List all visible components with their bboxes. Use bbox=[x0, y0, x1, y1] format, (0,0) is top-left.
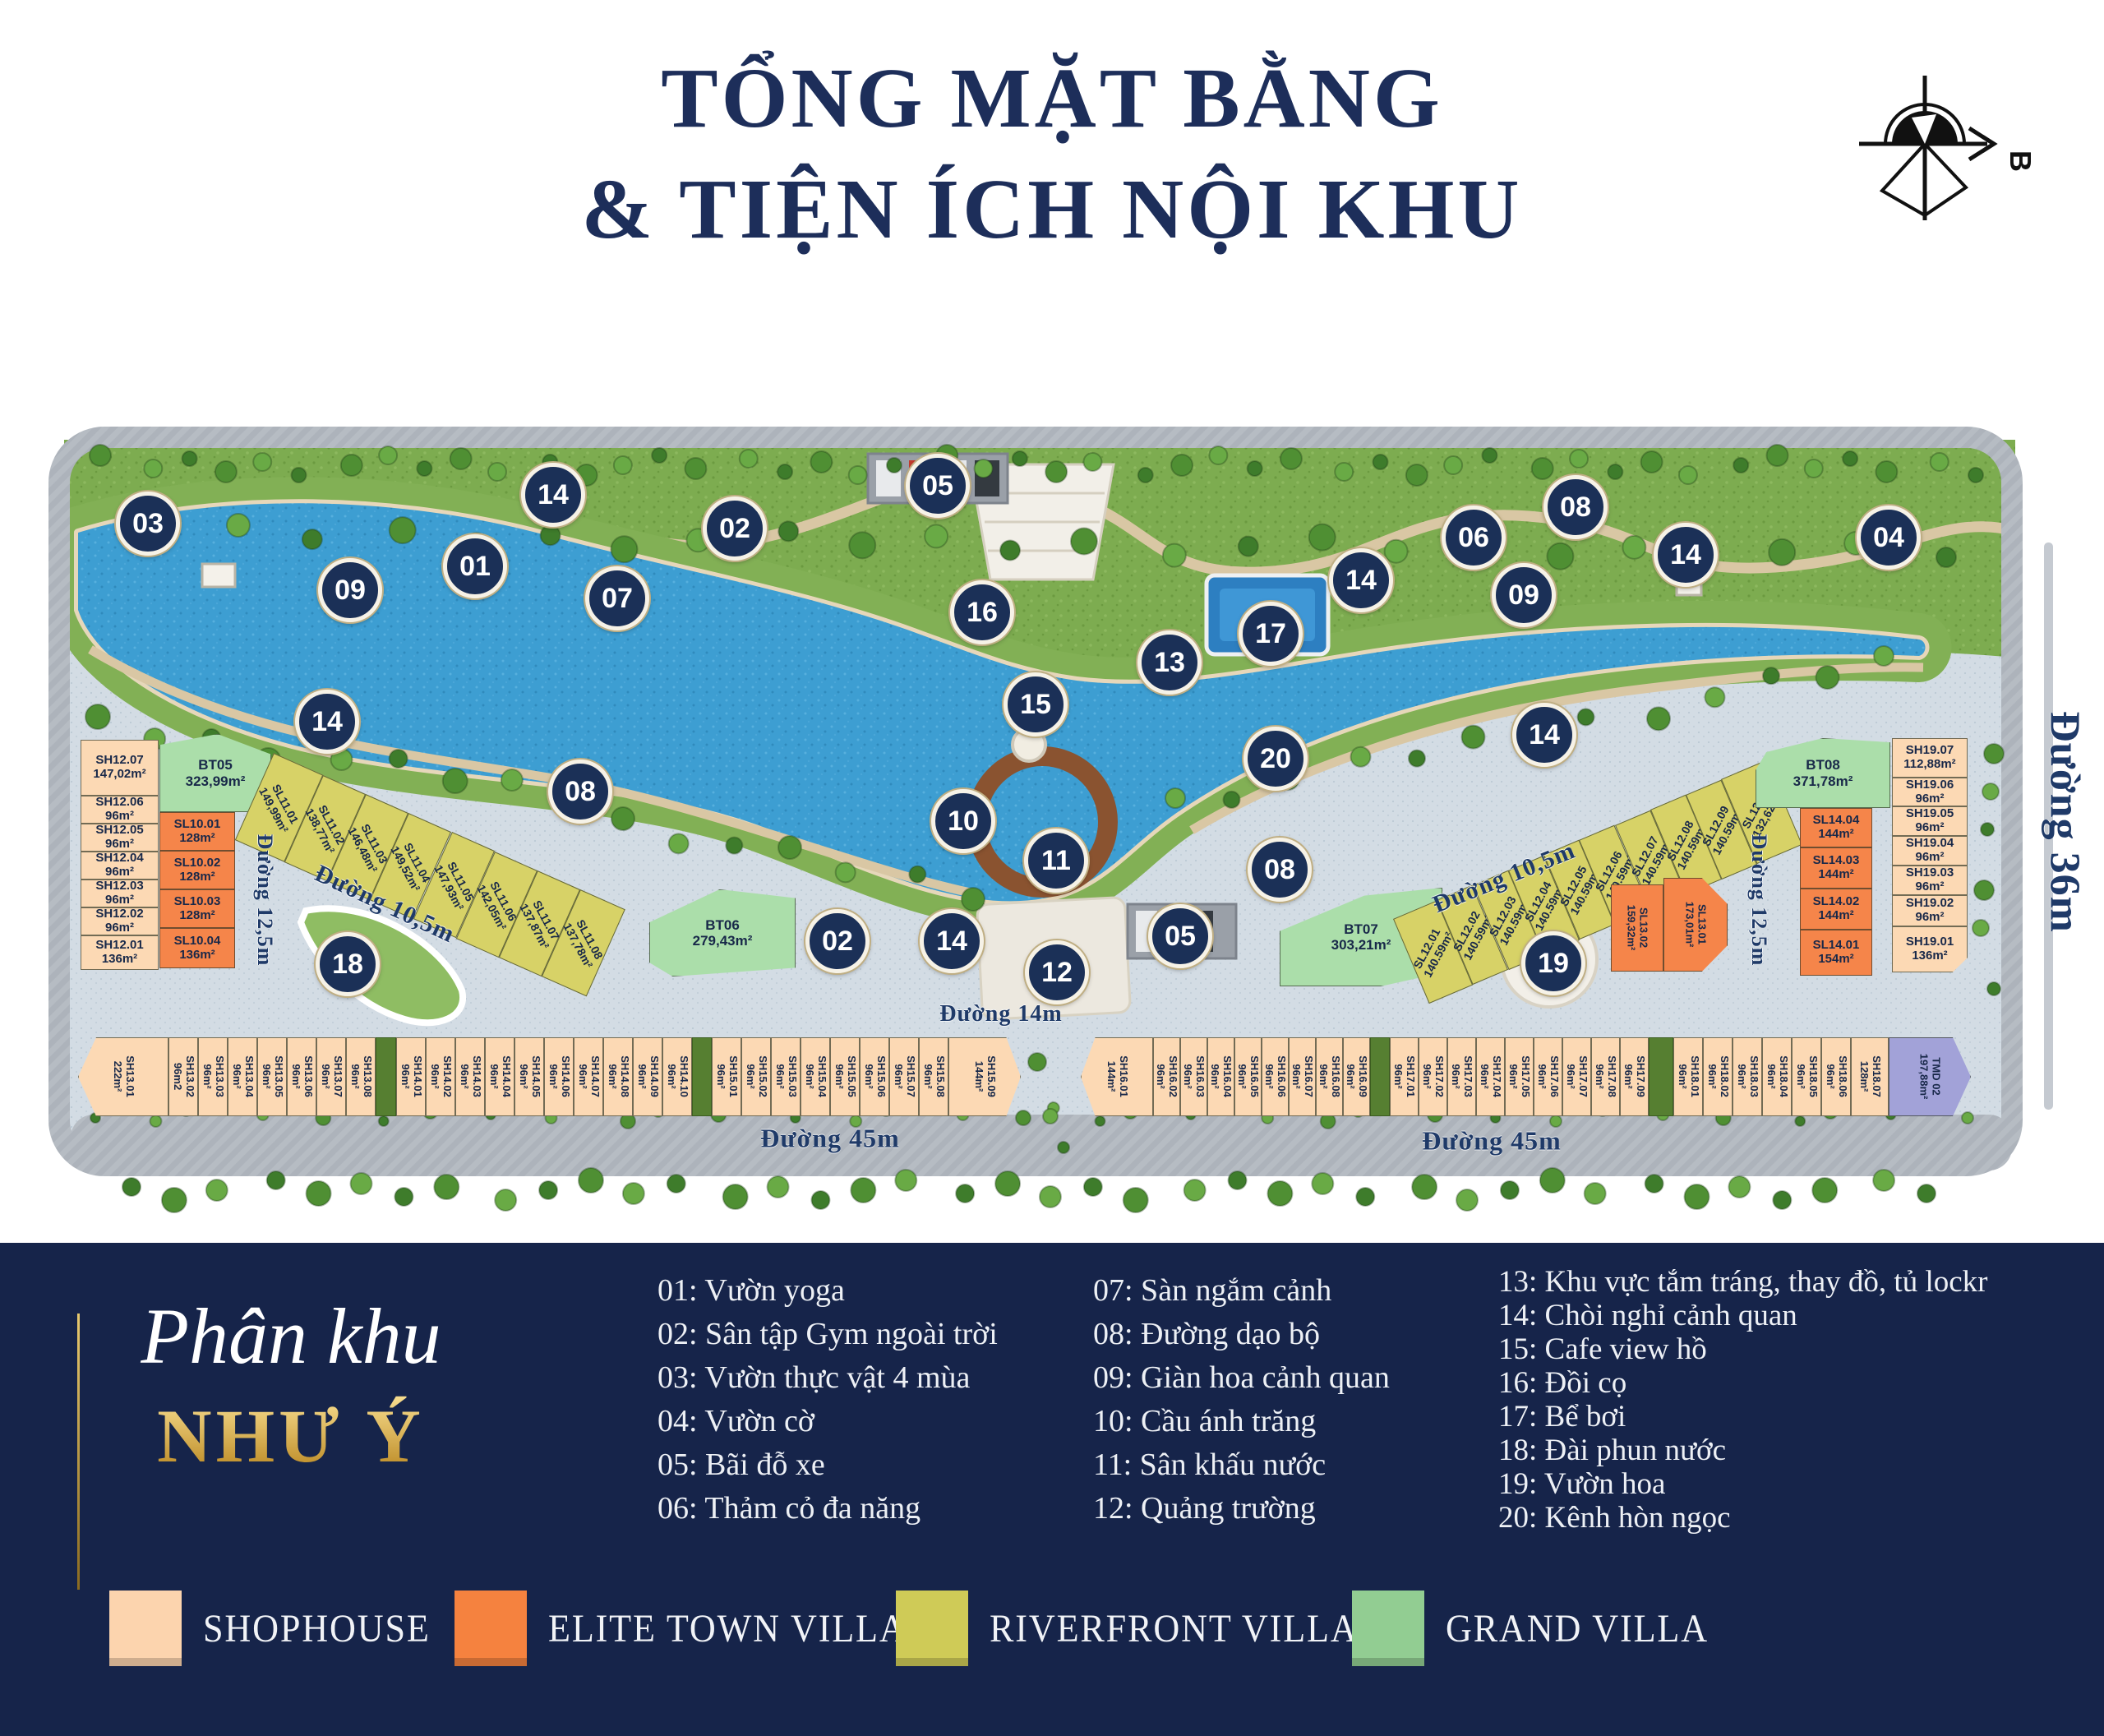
lot-sh16-03: SH16.0396m² bbox=[1180, 1037, 1207, 1116]
lot-label: SL13.01173,01m² bbox=[1683, 902, 1707, 948]
lot-label: SH15.0496m² bbox=[803, 1056, 827, 1098]
lot-label: SH12.01136m² bbox=[95, 939, 143, 967]
lot-label: SL12.01140.59m² bbox=[1410, 924, 1456, 980]
lot-sh13-07: SH13.0796m² bbox=[316, 1037, 346, 1116]
lot-sh14-08: SH14.0896m² bbox=[603, 1037, 633, 1116]
lot-label: BT08371,78m² bbox=[1793, 757, 1853, 788]
lot-sh16-02: SH16.0296m² bbox=[1153, 1037, 1180, 1116]
lot-label: SH18.07128m² bbox=[1857, 1056, 1881, 1098]
lot-sh17-01: SH17.0196m² bbox=[1390, 1037, 1419, 1116]
lot-sh13-08: SH13.0896m² bbox=[346, 1037, 376, 1116]
lot-sl13-01: SL13.01173,01m² bbox=[1663, 878, 1728, 972]
lot-label: SH12.0696m² bbox=[95, 796, 143, 824]
lot-sh16-09: SH16.0996m² bbox=[1343, 1037, 1370, 1116]
masterplan-page: TỔNG MẶT BẰNG & TIỆN ÍCH NỘI KHU B bbox=[0, 0, 2104, 1736]
lot-label: SL10.03128m² bbox=[174, 895, 221, 923]
lot-label: SH17.0496m² bbox=[1479, 1056, 1502, 1098]
lot-label: SL11.04149,52m² bbox=[388, 838, 434, 894]
lot-bt08: BT08371,78m² bbox=[1756, 738, 1890, 808]
lot-label: SH16.0496m² bbox=[1209, 1056, 1233, 1098]
lot-label: SL10.04136m² bbox=[174, 935, 221, 963]
lot-sh13-03: SH13.0396m² bbox=[198, 1037, 228, 1116]
lot-label: SH13.0796m² bbox=[319, 1056, 343, 1098]
lot-label: SH16.0996m² bbox=[1345, 1056, 1368, 1098]
lot-label: SH14.0796m² bbox=[576, 1056, 600, 1098]
lot-label: SH19.01136m² bbox=[1906, 935, 1954, 963]
lot-label: SH16.0696m² bbox=[1263, 1056, 1287, 1098]
lot-sh13-04: SH13.0496m² bbox=[228, 1037, 257, 1116]
lot-label: SH17.0396m² bbox=[1450, 1056, 1474, 1098]
lot-label: TMD 02197,88m² bbox=[1917, 1054, 1941, 1100]
lot-label: SH12.0496m² bbox=[95, 852, 143, 880]
lot-label: SH13.0396m² bbox=[201, 1056, 224, 1098]
lot-label: SH18.0596m² bbox=[1794, 1056, 1818, 1098]
lot-label: SH15.0796m² bbox=[892, 1056, 916, 1098]
lot-sh15-09: SH15.09144m² bbox=[948, 1037, 1021, 1116]
lot-sh14-07: SH14.0796m² bbox=[574, 1037, 603, 1116]
lot-sh14-02: SH14.0296m² bbox=[426, 1037, 455, 1116]
lot-label: SH14.0196m² bbox=[399, 1056, 422, 1098]
lot-label: SH12.0396m² bbox=[95, 880, 143, 907]
lot-label: SH15.0596m² bbox=[833, 1056, 856, 1098]
lot-label: SH16.0796m² bbox=[1290, 1056, 1314, 1098]
lot-sh18-06: SH18.0696m² bbox=[1821, 1037, 1851, 1116]
lot-label: SH18.0496m² bbox=[1765, 1056, 1788, 1098]
lot-sh19-02: SH19.0296m² bbox=[1892, 895, 1968, 926]
lot-label: SH15.0896m² bbox=[921, 1056, 945, 1098]
lot-sh12-03: SH12.0396m² bbox=[81, 880, 159, 907]
lot-label: SL14.02144m² bbox=[1813, 895, 1860, 923]
lot-sh18-03: SH18.0396m² bbox=[1733, 1037, 1762, 1116]
lot-sh16-07: SH16.0796m² bbox=[1289, 1037, 1316, 1116]
lot-sh12-07: SH12.07147,02m² bbox=[81, 740, 159, 796]
lot-sh15-05: SH15.0596m² bbox=[830, 1037, 860, 1116]
lot-label: SH19.0296m² bbox=[1906, 897, 1954, 925]
lot-sh17-05: SH17.0596m² bbox=[1505, 1037, 1534, 1116]
lot-label: SH15.0696m² bbox=[862, 1056, 886, 1098]
lot-sh17-02: SH17.0296m² bbox=[1419, 1037, 1447, 1116]
lot-sh12-06: SH12.0696m² bbox=[81, 796, 159, 824]
lot-sh19-07: SH19.07112,88m² bbox=[1892, 738, 1968, 778]
lot-label: SH18.0396m² bbox=[1735, 1056, 1759, 1098]
lot-label: SH14.0996m² bbox=[635, 1056, 659, 1098]
lot-label: SH17.0296m² bbox=[1421, 1056, 1445, 1098]
lot-sh17-09: SH17.0996m² bbox=[1620, 1037, 1649, 1116]
compass-icon: B bbox=[0, 0, 2104, 329]
lot-label: SH13.0896m² bbox=[348, 1056, 372, 1098]
lot-label: SH18.0196m² bbox=[1676, 1056, 1700, 1098]
lot-sl14-03: SL14.03144m² bbox=[1800, 847, 1872, 889]
lot-label: SH17.0896m² bbox=[1594, 1056, 1617, 1098]
lot-sh14-10: SH14.1096m² bbox=[662, 1037, 692, 1116]
lot-sl13-02: SL13.02159,32m² bbox=[1611, 884, 1663, 972]
lot-label: SH13.01222m² bbox=[111, 1056, 135, 1098]
lot-label: SH18.0696m² bbox=[1824, 1056, 1848, 1098]
lot-label: SL14.01154m² bbox=[1813, 939, 1860, 967]
lot-label: SH16.0896m² bbox=[1317, 1056, 1341, 1098]
lot-label: SH13.0296m2 bbox=[171, 1056, 195, 1098]
lot-label: SH14.1096m² bbox=[665, 1056, 689, 1098]
green-strip bbox=[1649, 1037, 1673, 1116]
lot-sl14-01: SL14.01154m² bbox=[1800, 930, 1872, 976]
lot-label: SL14.04144m² bbox=[1813, 814, 1860, 842]
lot-sh14-06: SH14.0696m² bbox=[544, 1037, 574, 1116]
lot-sh15-03: SH15.0396m² bbox=[771, 1037, 801, 1116]
lot-sh17-04: SH17.0496m² bbox=[1476, 1037, 1505, 1116]
lot-sh17-08: SH17.0896m² bbox=[1591, 1037, 1620, 1116]
lot-sh17-07: SH17.0796m² bbox=[1562, 1037, 1591, 1116]
lot-bt06: BT06279,43m² bbox=[649, 889, 796, 976]
lot-label: SH19.0696m² bbox=[1906, 778, 1954, 806]
lot-label: SH18.0296m² bbox=[1705, 1056, 1729, 1098]
lot-sh12-04: SH12.0496m² bbox=[81, 852, 159, 880]
lot-label: SH12.0296m² bbox=[95, 907, 143, 935]
lot-sh18-07: SH18.07128m² bbox=[1851, 1037, 1889, 1116]
lot-label: SH17.0696m² bbox=[1536, 1056, 1560, 1098]
lot-label: SL14.03144m² bbox=[1813, 854, 1860, 882]
lot-label: BT06279,43m² bbox=[693, 917, 753, 949]
lot-label: SH15.0396m² bbox=[773, 1056, 797, 1098]
lot-sh16-01: SH16.01144m² bbox=[1081, 1037, 1153, 1116]
lot-sh15-02: SH15.0296m² bbox=[741, 1037, 771, 1116]
lot-label: SH17.0196m² bbox=[1392, 1056, 1416, 1098]
lot-label: SH14.0896m² bbox=[606, 1056, 630, 1098]
lot-sh18-04: SH18.0496m² bbox=[1762, 1037, 1792, 1116]
lot-sh14-05: SH14.0596m² bbox=[514, 1037, 544, 1116]
lot-sh14-04: SH14.0496m² bbox=[485, 1037, 514, 1116]
lot-sh14-09: SH14.0996m² bbox=[633, 1037, 662, 1116]
lot-sh12-02: SH12.0296m² bbox=[81, 907, 159, 935]
green-strip bbox=[692, 1037, 712, 1116]
lot-label: SH14.0296m² bbox=[428, 1056, 452, 1098]
lot-label: SH16.01144m² bbox=[1105, 1056, 1128, 1098]
lot-sl10-02: SL10.02128m² bbox=[159, 851, 235, 889]
lot-sh15-08: SH15.0896m² bbox=[919, 1037, 948, 1116]
lot-sh16-08: SH16.0896m² bbox=[1316, 1037, 1343, 1116]
lot-label: SH14.0696m² bbox=[547, 1056, 570, 1098]
lot-label: SH17.0996m² bbox=[1622, 1056, 1646, 1098]
green-strip bbox=[376, 1037, 396, 1116]
lot-label: SH16.0596m² bbox=[1236, 1056, 1260, 1098]
lot-sh16-06: SH16.0696m² bbox=[1262, 1037, 1289, 1116]
lot-sl10-01: SL10.01128m² bbox=[159, 812, 235, 851]
lot-sh19-01: SH19.01136m² bbox=[1892, 926, 1968, 972]
lot-sh17-06: SH17.0696m² bbox=[1534, 1037, 1562, 1116]
lot-sh19-03: SH19.0396m² bbox=[1892, 866, 1968, 895]
lot-sh18-05: SH18.0596m² bbox=[1792, 1037, 1821, 1116]
lot-sh15-06: SH15.0696m² bbox=[860, 1037, 889, 1116]
lot-sh14-01: SH14.0196m² bbox=[396, 1037, 426, 1116]
lot-sh15-07: SH15.0796m² bbox=[889, 1037, 919, 1116]
lot-label: SH17.0596m² bbox=[1507, 1056, 1531, 1098]
lot-sh16-05: SH16.0596m² bbox=[1234, 1037, 1262, 1116]
lot-label: BT07303,21m² bbox=[1331, 921, 1391, 953]
lot-sh19-06: SH19.0696m² bbox=[1892, 778, 1968, 806]
compass-label: B bbox=[2004, 150, 2037, 172]
lot-label: SH14.0396m² bbox=[458, 1056, 482, 1098]
lot-label: SH17.0796m² bbox=[1565, 1056, 1589, 1098]
lot-label: BT05323,99m² bbox=[186, 757, 246, 788]
lot-label: SH15.09144m² bbox=[972, 1056, 996, 1098]
lot-label: SH19.0396m² bbox=[1906, 866, 1954, 894]
lot-tmd-02: TMD 02197,88m² bbox=[1889, 1037, 1971, 1116]
lot-sh14-03: SH14.0396m² bbox=[455, 1037, 485, 1116]
lot-sh13-06: SH13.0696m² bbox=[287, 1037, 316, 1116]
lot-sh12-01: SH12.01136m² bbox=[81, 935, 159, 970]
lot-sh13-01: SH13.01222m² bbox=[78, 1037, 168, 1116]
lot-sh19-04: SH19.0496m² bbox=[1892, 836, 1968, 866]
lot-sl10-03: SL10.03128m² bbox=[159, 889, 235, 928]
lot-sh12-05: SH12.0596m² bbox=[81, 824, 159, 852]
lot-label: SH14.0496m² bbox=[487, 1056, 511, 1098]
lot-sl10-04: SL10.04136m² bbox=[159, 928, 235, 968]
lot-label: SL10.02128m² bbox=[174, 856, 221, 884]
lot-label: SH16.0296m² bbox=[1155, 1056, 1179, 1098]
lot-label: SH13.0596m² bbox=[260, 1056, 284, 1098]
lot-label: SH13.0496m² bbox=[230, 1056, 254, 1098]
lot-label: SL11.08137,78m² bbox=[561, 915, 607, 971]
lot-label: SH16.0396m² bbox=[1182, 1056, 1206, 1098]
lot-sh13-02: SH13.0296m2 bbox=[168, 1037, 198, 1116]
green-strip bbox=[1370, 1037, 1390, 1116]
lot-label: SL10.01128m² bbox=[174, 818, 221, 846]
lot-sh15-01: SH15.0196m² bbox=[712, 1037, 741, 1116]
lot-label: SH12.07147,02m² bbox=[93, 754, 145, 782]
lot-label: SH15.0196m² bbox=[714, 1056, 738, 1098]
lot-label: SH15.0296m² bbox=[744, 1056, 768, 1098]
lot-label: SH13.0696m² bbox=[289, 1056, 313, 1098]
lot-sh15-04: SH15.0496m² bbox=[801, 1037, 830, 1116]
lot-label: SH14.0596m² bbox=[517, 1056, 541, 1098]
lot-label: SH19.07112,88m² bbox=[1903, 744, 1955, 772]
lot-sh19-05: SH19.0596m² bbox=[1892, 806, 1968, 836]
lot-label: SH12.0596m² bbox=[95, 824, 143, 852]
lot-label: SL13.02159,32m² bbox=[1625, 905, 1649, 951]
lot-sh18-01: SH18.0196m² bbox=[1673, 1037, 1703, 1116]
lot-sh13-05: SH13.0596m² bbox=[257, 1037, 287, 1116]
lot-sh18-02: SH18.0296m² bbox=[1703, 1037, 1733, 1116]
lot-sl14-04: SL14.04144m² bbox=[1800, 808, 1872, 847]
lot-label: SH19.0596m² bbox=[1906, 807, 1954, 835]
lot-sl14-02: SL14.02144m² bbox=[1800, 889, 1872, 930]
lot-label: SH19.0496m² bbox=[1906, 837, 1954, 865]
lot-sh17-03: SH17.0396m² bbox=[1447, 1037, 1476, 1116]
lot-label: SL11.01149,99m² bbox=[256, 780, 302, 836]
lot-sh16-04: SH16.0496m² bbox=[1207, 1037, 1234, 1116]
